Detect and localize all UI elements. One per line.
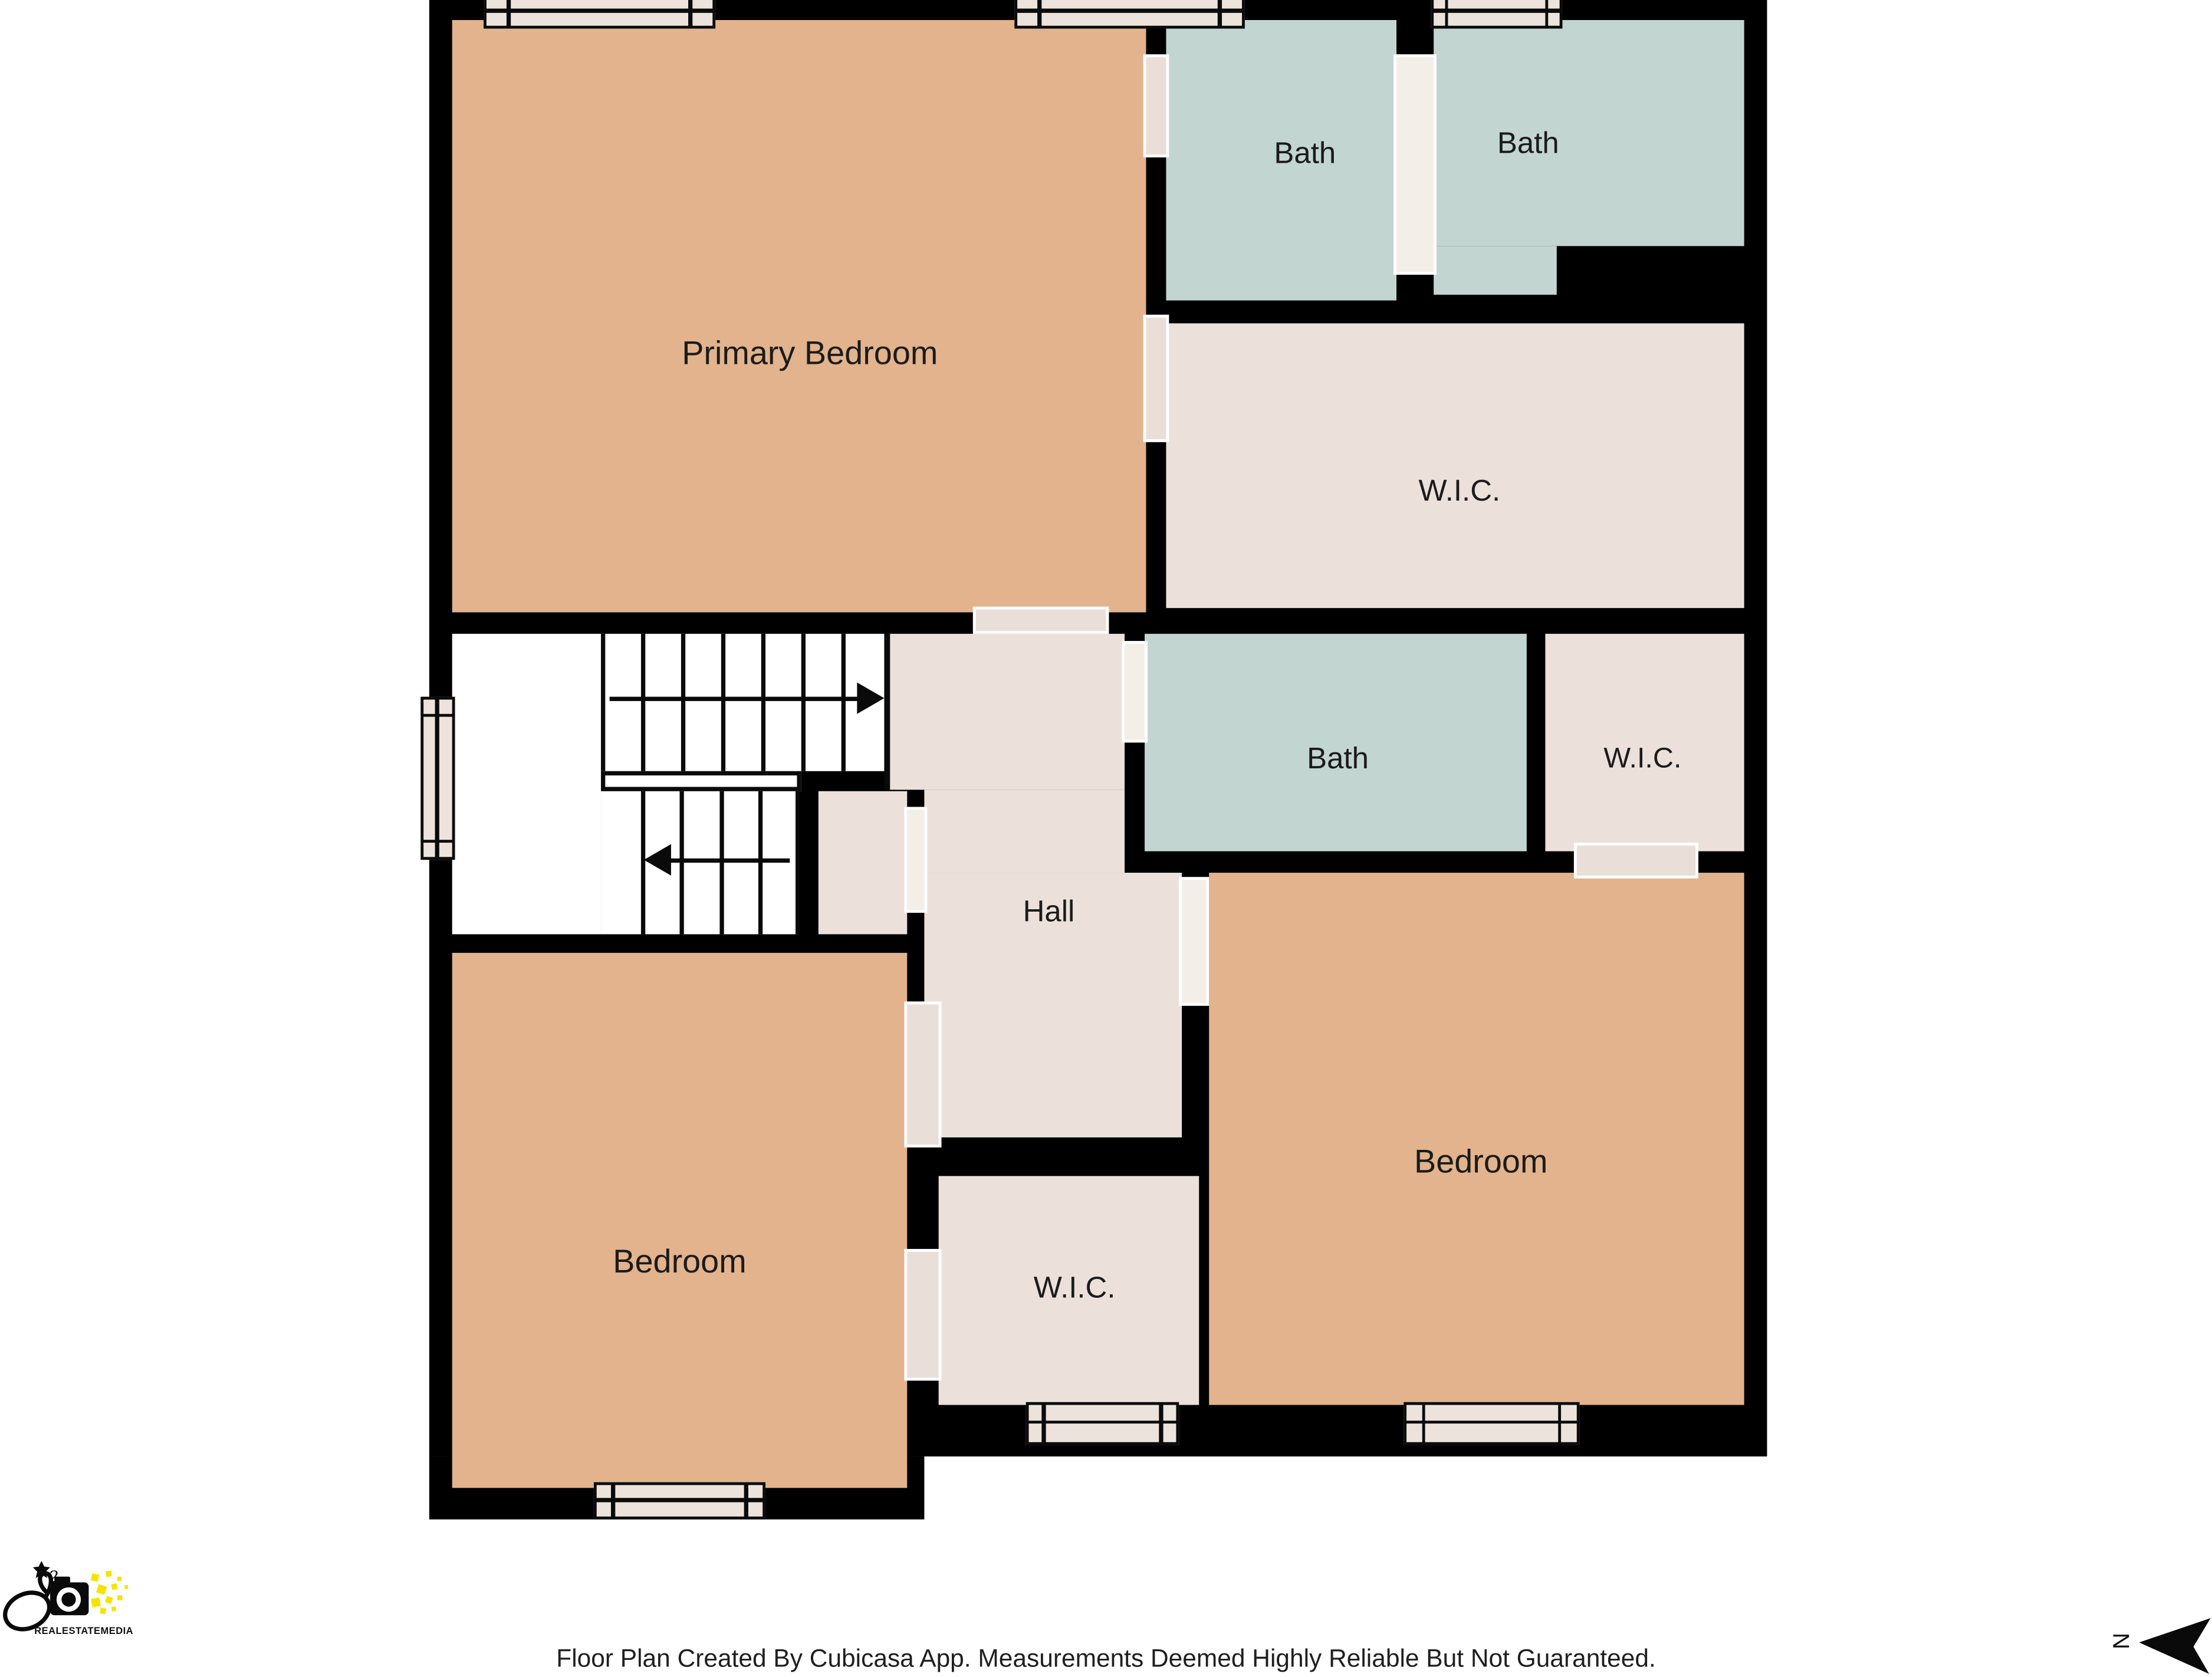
room-hall-mid xyxy=(924,790,1125,873)
label-bath-top-right: Bath xyxy=(1497,127,1559,162)
stair-landing xyxy=(601,771,801,791)
door-primary-to-bath xyxy=(1143,54,1169,157)
camera-icon xyxy=(50,1577,89,1616)
room-bath-top-right xyxy=(1434,20,1744,246)
window-bedroom-left-bottom xyxy=(594,1482,765,1520)
stair-up-arrowhead xyxy=(857,682,884,713)
room-bath-top-right-step xyxy=(1434,246,1557,294)
stairwell-void xyxy=(452,634,601,935)
room-hall-upper xyxy=(890,634,1125,790)
label-bedroom-left: Bedroom xyxy=(613,1242,746,1281)
window-wic-bottom xyxy=(1026,1402,1179,1445)
stair-up-arrow xyxy=(610,697,862,701)
stair-down-arrow xyxy=(670,859,790,863)
label-wic-top: W.I.C. xyxy=(1418,475,1500,509)
window-primary-top-right xyxy=(1014,0,1245,29)
label-wic-middle: W.I.C. xyxy=(1603,743,1681,776)
label-bath-top-left: Bath xyxy=(1274,137,1336,172)
window-bedroom-right-bottom xyxy=(1404,1402,1579,1445)
room-bedroom-right xyxy=(1209,873,1744,1405)
label-hall: Hall xyxy=(1023,896,1075,930)
label-wic-bottom: W.I.C. xyxy=(1034,1272,1116,1306)
floor-plan-canvas: Primary Bedroom Bath Bath W.I.C. Bath W.… xyxy=(0,0,2212,1677)
door-primary-to-wic xyxy=(1143,315,1169,442)
room-bedroom-left xyxy=(452,953,908,1488)
window-bath-top xyxy=(1431,0,1562,29)
window-stairwell-left xyxy=(420,697,455,860)
room-primary-bedroom xyxy=(452,20,1146,612)
door-hall-to-bath-middle xyxy=(1122,641,1148,742)
door-bedroom-left-to-wic xyxy=(904,1249,941,1380)
stair-down-arrowhead xyxy=(644,844,671,876)
room-wic-top xyxy=(1166,323,1744,608)
door-primary-to-hall xyxy=(973,607,1109,634)
door-bath-to-bath xyxy=(1393,54,1437,275)
realestatemedia-logo: 2 REALESTATEMEDIA xyxy=(3,1560,134,1648)
room-stair-nook xyxy=(819,791,907,935)
door-hall-to-bedroom-right xyxy=(1179,877,1209,1005)
window-primary-top-left xyxy=(484,0,715,29)
logo-brand-text: REALESTATEMEDIA xyxy=(34,1626,133,1636)
label-bedroom-right: Bedroom xyxy=(1414,1142,1547,1181)
door-nook-to-hall xyxy=(904,807,927,913)
door-wic-middle-to-bedroom xyxy=(1574,843,1698,879)
door-bedroom-left-to-hall xyxy=(904,1001,941,1147)
stairwell-void-2 xyxy=(601,791,641,935)
flash-pixels xyxy=(91,1570,128,1614)
label-bath-middle: Bath xyxy=(1307,742,1369,777)
disclaimer-text: Floor Plan Created By Cubicasa App. Meas… xyxy=(0,1644,2212,1674)
label-primary-bedroom: Primary Bedroom xyxy=(682,334,938,373)
room-wic-middle xyxy=(1545,634,1744,851)
